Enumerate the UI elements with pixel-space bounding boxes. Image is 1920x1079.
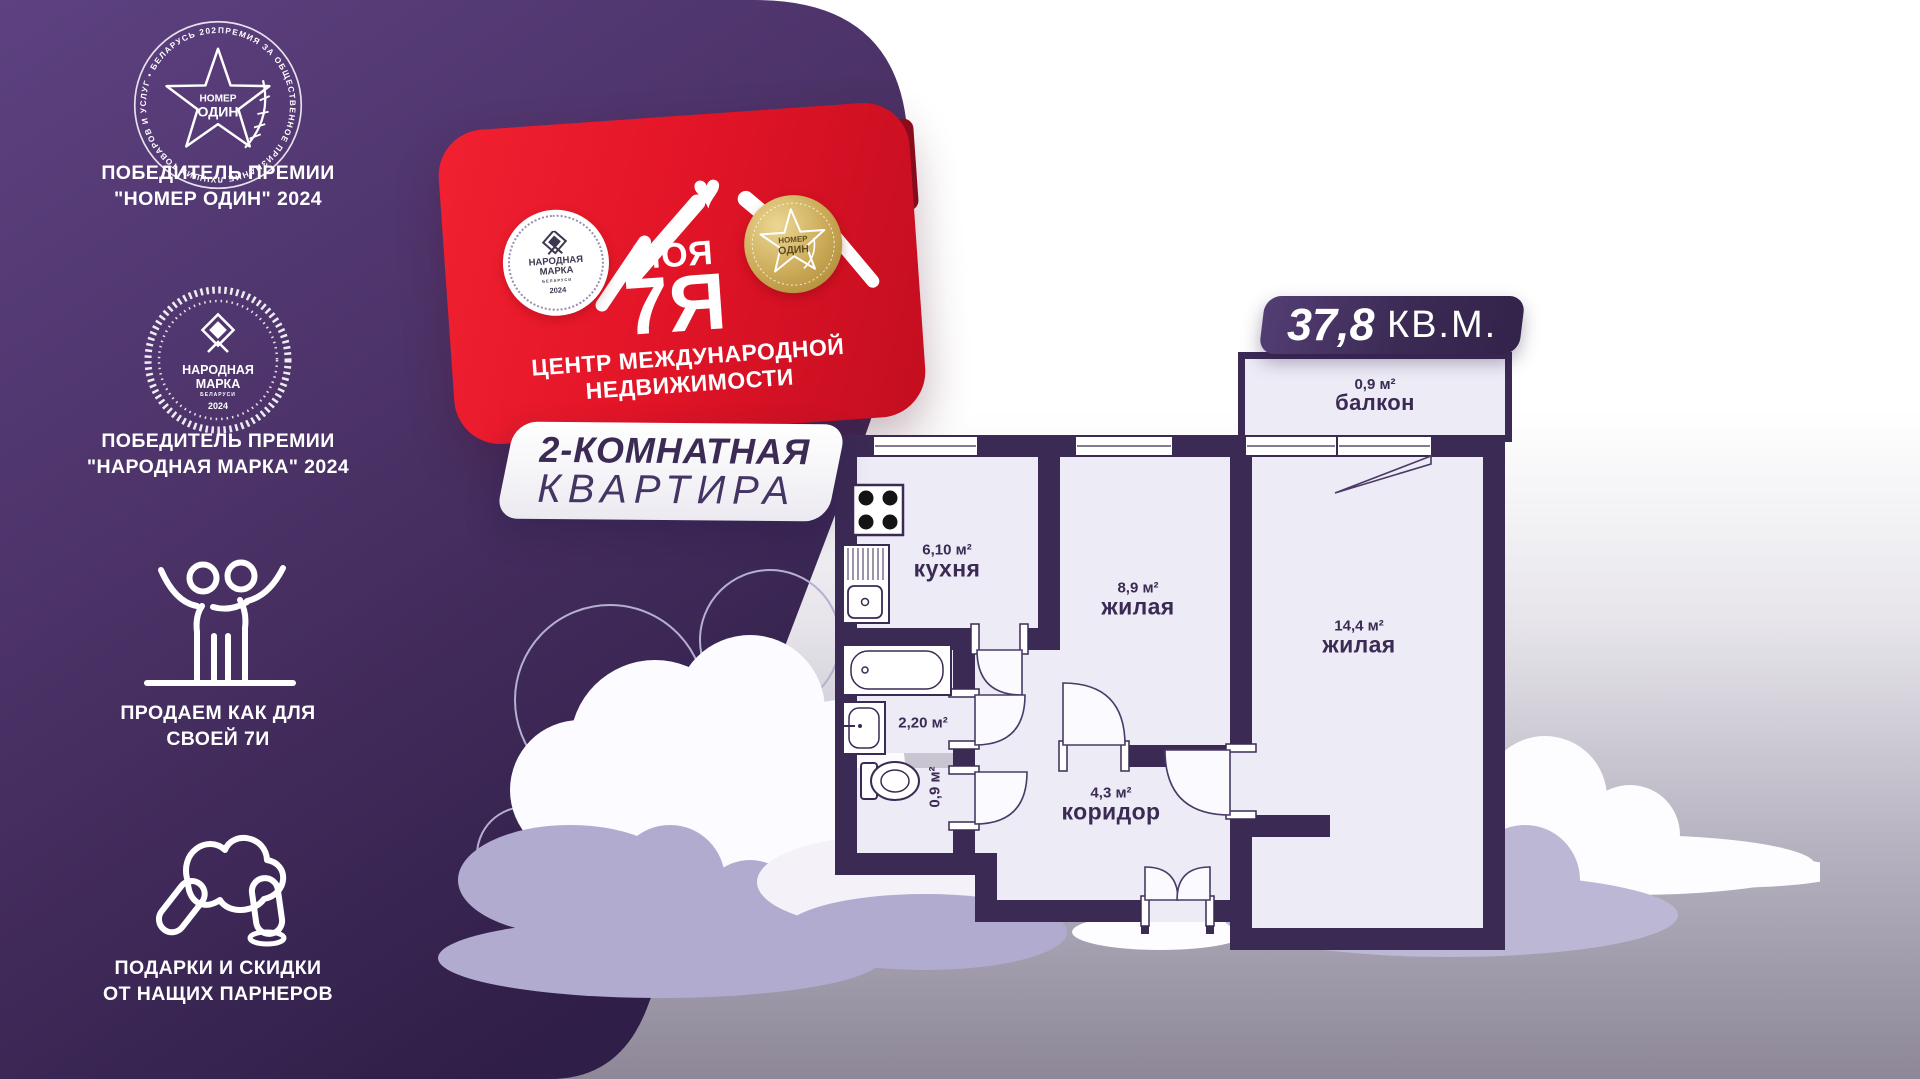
flyer-canvas: ПРЕМИЯ ЗА ОБЩЕСТВЕННОЕ ПРИЗНАНИЕ ЛУЧШИХ … xyxy=(0,0,1920,1079)
floor-plan: 0,9 м² балкон 6,10 м² кухня 8,9 м² жилая… xyxy=(835,290,1515,970)
award2-caption-line1: ПОБЕДИТЕЛЬ ПРЕМИИ xyxy=(28,428,408,454)
family-icon xyxy=(135,556,305,690)
award2-caption: ПОБЕДИТЕЛЬ ПРЕМИИ "НАРОДНАЯ МАРКА" 2024 xyxy=(28,428,408,480)
hands-gift-icon xyxy=(130,820,315,948)
room-small-label: 8,9 м² жилая xyxy=(1101,580,1174,621)
total-area-plate: 37,8 КВ.М. xyxy=(1258,296,1525,354)
stamp-right-line2: ОДИН xyxy=(778,243,809,257)
stamp-folk-brand-inner: НАРОДНАЯ МАРКА БЕЛАРУСИ 2024 xyxy=(505,212,607,314)
value1-caption: ПРОДАЕМ КАК ДЛЯ СВОЕЙ 7И xyxy=(28,700,408,752)
kitchen-sink-icon xyxy=(848,586,882,618)
balcony-name: балкон xyxy=(1335,390,1415,416)
award1-caption-line2: "НОМЕР ОДИН" 2024 xyxy=(28,186,408,212)
award2-badge-line1: НАРОДНАЯ xyxy=(182,363,254,377)
award1-badge-line2: ОДИН xyxy=(198,103,239,119)
hall-label: 4,3 м² коридор xyxy=(1062,785,1161,826)
award2-badge-line2: МАРКА xyxy=(196,377,240,391)
room-large-fill xyxy=(1252,457,1483,928)
room-small-name: жилая xyxy=(1101,594,1174,621)
value2-caption: ПОДАРКИ И СКИДКИ ОТ НАЩИХ ПАРНЕРОВ xyxy=(28,955,408,1007)
balcony-label: 0,9 м² балкон xyxy=(1335,376,1415,416)
ornament-diamond-icon xyxy=(202,314,233,352)
laurel-leaves xyxy=(250,96,270,139)
hall-name: коридор xyxy=(1062,799,1161,826)
stamp-left-sub: БЕЛАРУСИ xyxy=(542,277,572,284)
kitchen-name: кухня xyxy=(914,556,981,583)
value2-caption-line2: ОТ НАЩИХ ПАРНЕРОВ xyxy=(28,981,408,1007)
stamp-number-one-art: НОМЕР ОДИН xyxy=(741,192,846,297)
listing-type-line2: КВАРТИРА xyxy=(537,467,796,514)
room-large-label: 14,4 м² жилая xyxy=(1322,618,1395,659)
bathroom-area: 2,20 м² xyxy=(898,715,947,732)
stamp-number-one: НОМЕР ОДИН xyxy=(741,192,846,297)
heart-icon: ♥ xyxy=(691,165,724,217)
wc-label: 0,9 м² xyxy=(927,766,944,807)
value1-caption-line2: СВОЕЙ 7И xyxy=(28,726,408,752)
award2-badge-year: 2024 xyxy=(208,401,228,411)
total-area-unit: КВ.М. xyxy=(1387,304,1497,347)
value2-caption-line1: ПОДАРКИ И СКИДКИ xyxy=(28,955,408,981)
bathtub-icon xyxy=(843,645,951,695)
award2-caption-line2: "НАРОДНАЯ МАРКА" 2024 xyxy=(28,454,408,480)
award-folk-brand-badge: НАРОДНАЯ МАРКА БЕЛАРУСИ 2024 xyxy=(140,282,296,438)
stamp-left-year: 2024 xyxy=(549,285,566,295)
award1-caption-line1: ПОБЕДИТЕЛЬ ПРЕМИИ xyxy=(28,160,408,186)
total-area-value: 37,8 xyxy=(1287,299,1375,351)
award1-caption: ПОБЕДИТЕЛЬ ПРЕМИИ "НОМЕР ОДИН" 2024 xyxy=(28,160,408,212)
ornament-diamond-icon xyxy=(541,230,569,258)
listing-type-badge: 2-КОМНАТНАЯ КВАРТИРА xyxy=(495,422,846,522)
bathroom-label: 2,20 м² xyxy=(898,715,947,732)
room-large-name: жилая xyxy=(1322,632,1395,659)
value1-caption-line1: ПРОДАЕМ КАК ДЛЯ xyxy=(28,700,408,726)
windows xyxy=(873,436,1432,456)
kitchen-label: 6,10 м² кухня xyxy=(914,542,981,583)
toilet-icon xyxy=(871,762,919,800)
wc-area: 0,9 м² xyxy=(927,766,944,807)
award2-badge-line3: БЕЛАРУСИ xyxy=(200,392,236,398)
stove-icon xyxy=(853,485,903,535)
